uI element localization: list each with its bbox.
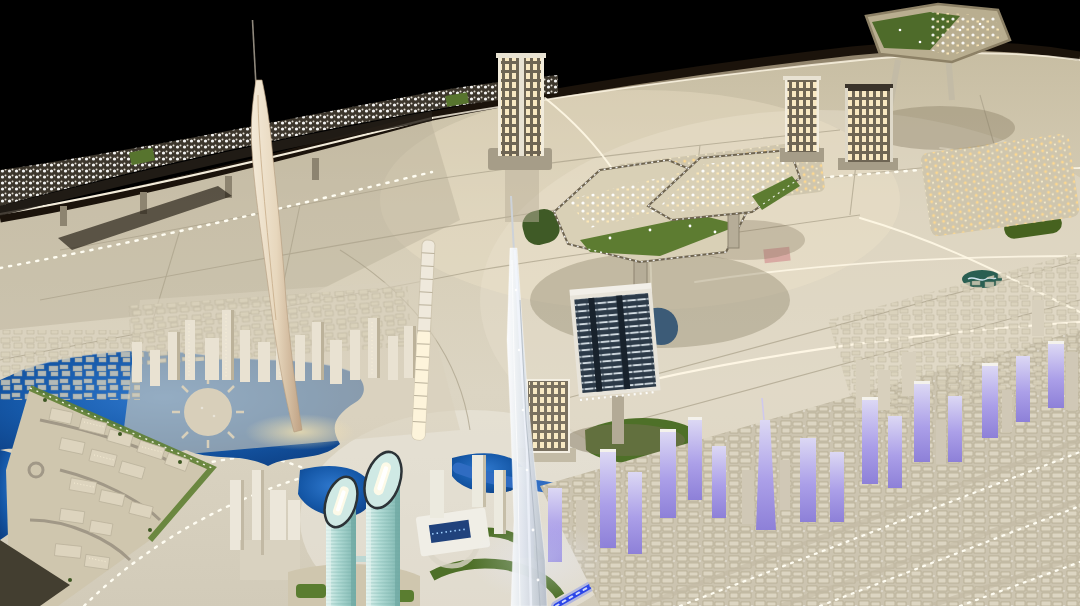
model-scene: [0, 0, 1080, 606]
lit-tower-right: [838, 84, 898, 170]
city-model-photo: [0, 0, 1080, 606]
lit-tower-mid: [780, 76, 824, 162]
